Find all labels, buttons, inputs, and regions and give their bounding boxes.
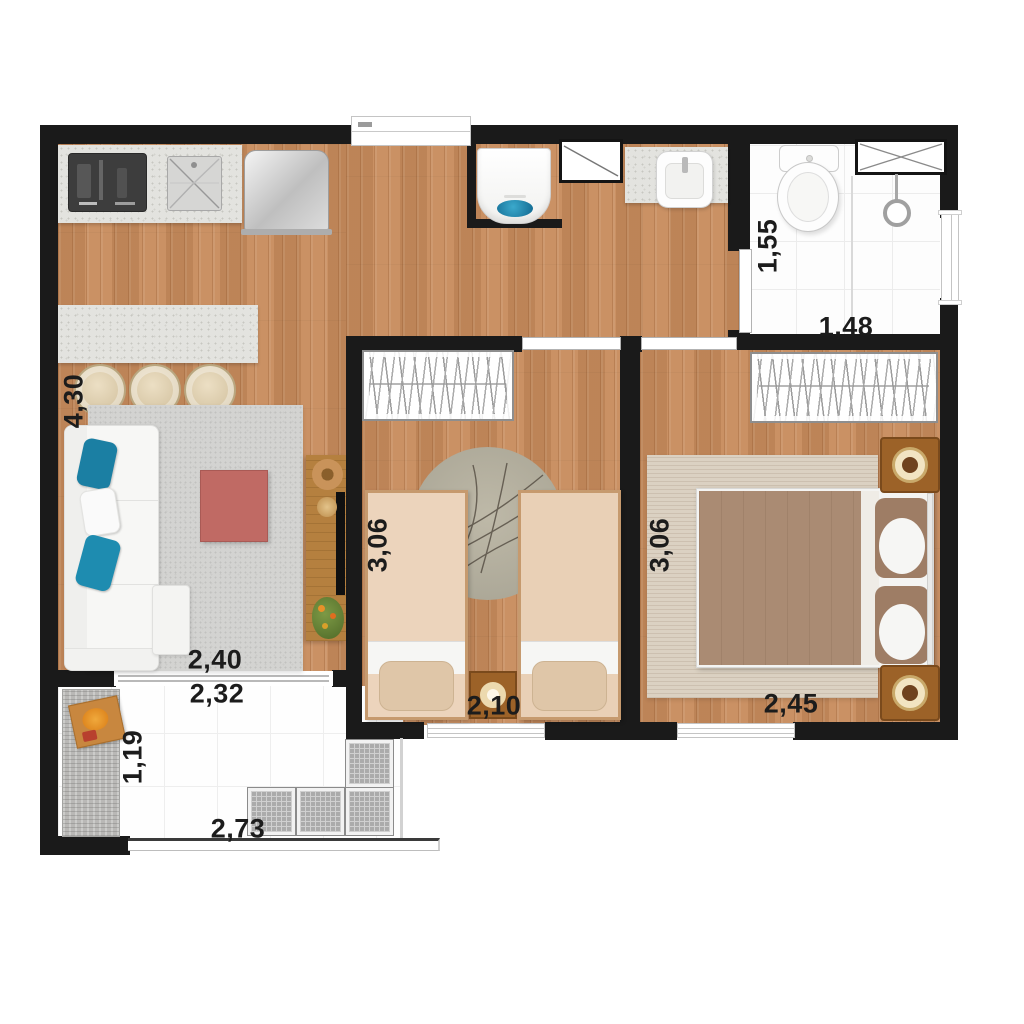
- duct-shaft-laundry: [559, 139, 623, 183]
- kitchen-sink: [167, 156, 222, 211]
- lamp-icon: [892, 675, 928, 711]
- pillow: [875, 498, 929, 578]
- refrigerator: [244, 150, 329, 230]
- dim-bedroom-twin-depth: 3,06: [363, 518, 394, 573]
- bathroom-window-sill-top: [938, 210, 962, 215]
- wall-bottom-right: [793, 722, 958, 740]
- single-bed: [518, 490, 621, 720]
- decor-basket: [312, 459, 343, 490]
- dim-bathroom-width: 1,48: [819, 312, 874, 343]
- bathroom-window: [941, 214, 959, 302]
- wall-balcony-bottom: [40, 836, 130, 855]
- headboard: [927, 493, 933, 665]
- dim-bedroom-double-width: 2,45: [764, 689, 819, 720]
- floor-grate: [297, 788, 344, 835]
- lamp-icon: [892, 447, 928, 483]
- bedroom-double-door: [641, 337, 737, 350]
- wall-left: [40, 125, 58, 855]
- window-latch-icon: [358, 122, 372, 127]
- bedroom-twin-window: [427, 723, 545, 738]
- shower-head-icon: [883, 199, 911, 227]
- floor-grate: [346, 740, 393, 787]
- dim-balcony-width-top: 2,32: [190, 679, 245, 710]
- wall-bath-left-upper: [728, 143, 750, 251]
- apartment-floor-plan: 4,30 2,40 2,32 1,19 2,73 3,06 2,10 3,06 …: [0, 0, 1024, 1024]
- dim-balcony-width-bottom: 2,73: [211, 814, 266, 845]
- wall-bottom-middle: [545, 722, 677, 740]
- wardrobe-twin: [362, 350, 514, 421]
- bedroom-twin-door: [522, 337, 621, 350]
- pillow: [379, 661, 454, 711]
- cooktop: [68, 153, 147, 212]
- wardrobe-double: [750, 352, 938, 423]
- toilet-bowl: [777, 162, 839, 232]
- wash-basin: [656, 151, 713, 208]
- washing-machine: [477, 148, 551, 224]
- tv: [336, 492, 345, 595]
- dim-balcony-depth: 1,19: [118, 730, 149, 785]
- dim-living-width: 2,40: [188, 645, 243, 676]
- wall-between-bedrooms: [620, 350, 640, 740]
- dim-bedroom-twin-width: 2,10: [467, 691, 522, 722]
- wall-balcony-corner: [346, 722, 424, 739]
- pillow: [532, 661, 607, 711]
- sofa-chaise: [152, 585, 190, 655]
- nightstand-double: [880, 665, 940, 721]
- wall-right-lower: [940, 298, 958, 740]
- duct-shaft-bathroom: [855, 139, 947, 175]
- pillow: [875, 586, 929, 664]
- refrigerator-base: [241, 229, 332, 235]
- faucet-icon: [682, 157, 688, 173]
- floor-grate: [346, 788, 393, 835]
- wall-laundry-niche-left: [467, 143, 476, 226]
- decor-bowl: [317, 497, 337, 517]
- bathroom-window-sill-bottom: [938, 300, 962, 305]
- bed-cover: [699, 491, 861, 665]
- bathroom-door: [739, 249, 752, 333]
- dim-bathroom-depth: 1,55: [753, 219, 784, 274]
- bedroom-double-window: [677, 723, 795, 738]
- decor-plant: [312, 597, 344, 639]
- wall-living-bedroom: [346, 338, 362, 740]
- island-counter: [58, 305, 258, 363]
- wall-living-balcony-left: [40, 670, 116, 687]
- nightstand-double: [880, 437, 940, 493]
- throw-pillow-white: [79, 486, 122, 537]
- double-bed: [696, 488, 934, 668]
- coffee-table: [200, 470, 268, 542]
- dim-living-depth: 4,30: [59, 374, 90, 429]
- dim-bedroom-double-depth: 3,06: [645, 518, 676, 573]
- kitchen-window: [351, 116, 471, 146]
- shower-partition: [851, 176, 853, 334]
- wall-top: [40, 125, 958, 144]
- glass-railing: [128, 838, 440, 851]
- balcony-edge: [400, 738, 403, 840]
